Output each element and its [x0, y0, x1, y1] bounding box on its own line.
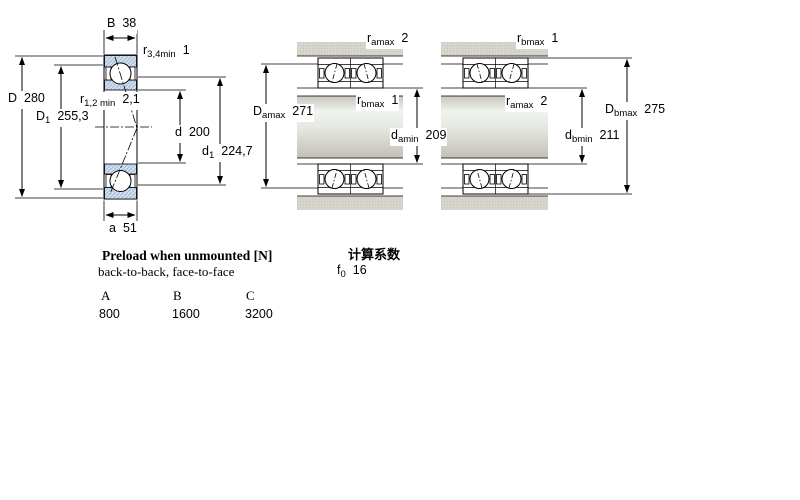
paired-mounting-drawing-b	[441, 42, 632, 210]
dim-label-D1: D1255,3	[35, 109, 90, 127]
housing-bottom	[441, 196, 548, 210]
dim-label-ramax-b: ramax2	[505, 94, 548, 112]
dim-label-rbmax-b: rbmax1	[516, 31, 559, 49]
preload-col-c: C	[246, 289, 255, 303]
dim-label-rbmax-a: rbmax1	[356, 93, 399, 111]
ball-bottom	[110, 171, 131, 192]
dim-label-r12min: r1,2 min2,1	[79, 92, 141, 110]
preload-value-c: 3200	[245, 308, 273, 322]
preload-value-a: 800	[99, 308, 120, 322]
dim-label-ramax-a: ramax2	[366, 31, 409, 49]
preload-col-a: A	[101, 289, 110, 303]
paired-mounting-drawing-a	[261, 42, 423, 210]
bearing-pair-bottom	[318, 164, 383, 194]
bearing-pair-top	[463, 58, 528, 88]
housing-bottom	[297, 196, 403, 210]
calc-factor-title: 计算系数	[348, 248, 400, 262]
dim-label-Damax: Damax271	[252, 104, 314, 122]
dim-label-a: a51	[108, 221, 138, 239]
preload-value-b: 1600	[172, 308, 200, 322]
bearing-pair-bottom	[463, 164, 528, 194]
calc-factor-f0: f016	[337, 264, 367, 280]
dim-label-d1: d1224,7	[201, 144, 254, 162]
dim-label-dbmin: dbmin211	[564, 128, 620, 146]
bearing-datasheet-drawing: B38 r3,4min1 D280 D1255,3 r1,2 min2,1 d2…	[0, 0, 800, 500]
dim-label-outer-diameter-D: D280	[7, 91, 46, 109]
dim-label-width-B: B38	[106, 16, 137, 34]
preload-subtitle: back-to-back, face-to-face	[98, 265, 234, 279]
preload-title: Preload when unmounted [N]	[102, 249, 272, 264]
bearing-pair-top	[318, 58, 383, 88]
dim-label-r34min: r3,4min1	[142, 43, 191, 61]
preload-col-b: B	[173, 289, 182, 303]
dim-label-Dbmax: Dbmax275	[604, 102, 666, 120]
dim-label-damin: damin209	[390, 128, 447, 146]
dim-label-bore-diameter-d: d200	[174, 125, 211, 143]
